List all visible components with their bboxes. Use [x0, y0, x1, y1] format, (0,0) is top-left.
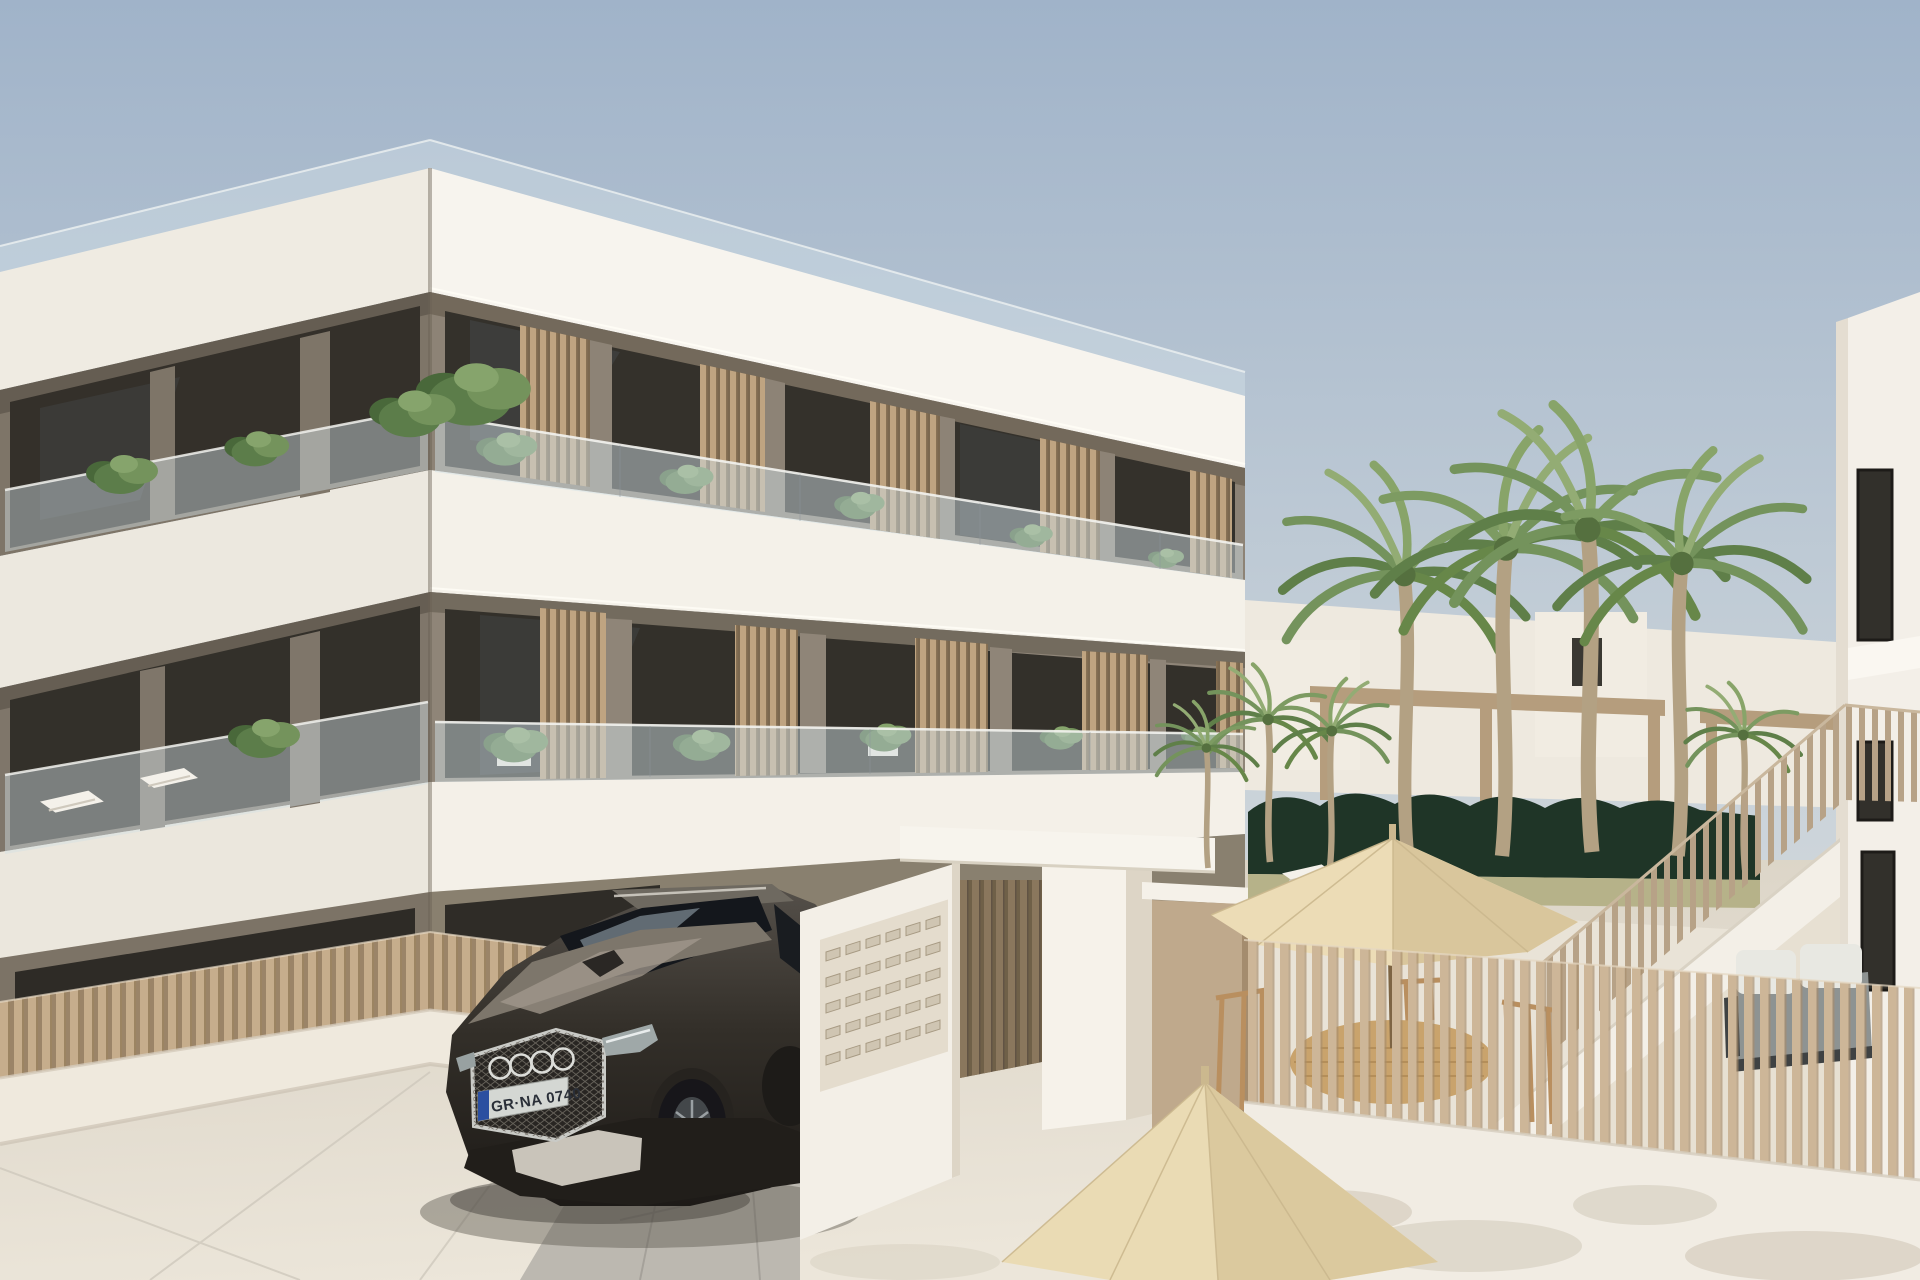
floor2-glass-balustrade: [435, 722, 1243, 782]
gate-pillar: [1042, 852, 1126, 1130]
render-stage: GR·NA 0740: [0, 0, 1920, 1280]
landing-railing: [1845, 705, 1920, 802]
right-building-window: [1862, 852, 1894, 990]
right-building-window: [1858, 470, 1892, 640]
euro-band: [478, 1090, 489, 1121]
scene-render: GR·NA 0740: [0, 0, 1920, 1280]
building-corner-edge: [428, 168, 432, 1005]
